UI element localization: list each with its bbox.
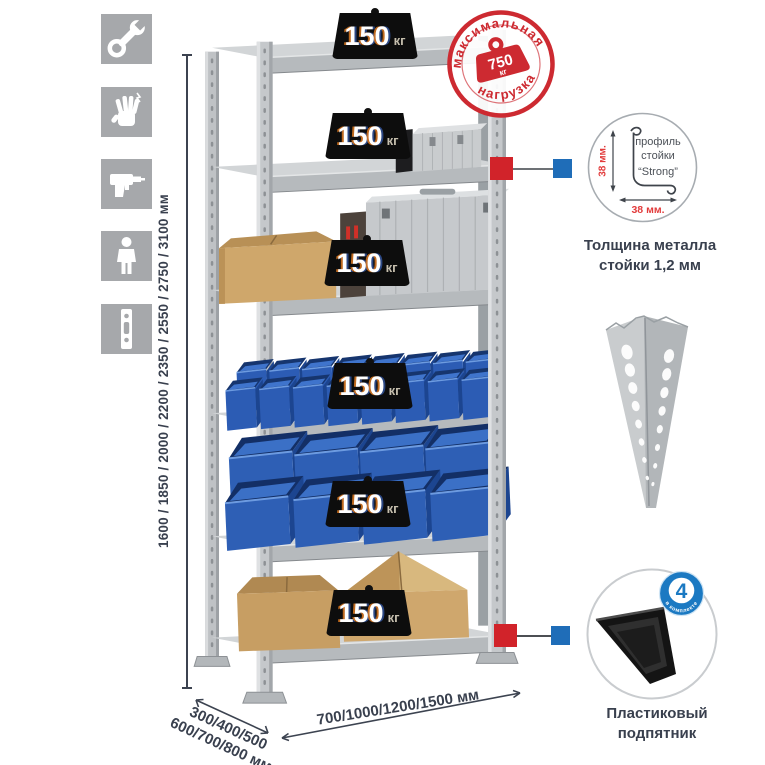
connector-blue-marker-top — [553, 159, 572, 178]
connector-red-marker-bottom — [494, 624, 517, 647]
profile-label: профиль стойки “Strong” — [635, 136, 681, 178]
width-dimension-label: 700/1000/1200/1500 мм — [316, 686, 481, 728]
weight-icon: 150кг — [325, 113, 411, 159]
load-badge: 150кг — [326, 585, 412, 636]
load-badge: 150кг — [325, 476, 411, 527]
weight-icon: 150кг — [326, 590, 412, 636]
height-dimension-line — [186, 55, 188, 688]
load-badge: 150кг — [327, 358, 413, 409]
included-count-badge: 4 в комплекте — [658, 570, 705, 617]
weight-icon: 150кг — [325, 481, 411, 527]
load-badge: 150кг — [324, 235, 410, 286]
load-badge: 150кг — [325, 108, 411, 159]
person-icon — [101, 231, 152, 281]
svg-text:стойки: стойки — [641, 150, 675, 162]
work-gloves-icon — [101, 87, 152, 137]
weight-icon: 150кг — [327, 363, 413, 409]
profile-dim-vertical: 38 мм. — [598, 145, 609, 177]
post-profile-detail: 38 мм. 38 мм. профиль стойки “Strong” — [584, 110, 701, 225]
rack-back-left-post — [205, 52, 219, 658]
height-dimension-label: 1600 / 1850 / 2000 / 2200 / 2350 / 2550 … — [156, 121, 174, 621]
wrench-icon — [101, 14, 152, 64]
connector-blue-marker-bottom — [551, 626, 570, 645]
cardboard-box — [219, 231, 336, 303]
foot-caption: Пластиковый подпятник — [565, 704, 749, 744]
svg-text:профиль: профиль — [635, 136, 681, 148]
floor-dimensions: 300/400/500 600/700/800 мм 700/1000/1200… — [150, 676, 550, 765]
drill-icon — [101, 159, 152, 209]
product-infographic: 1600 / 1850 / 2000 / 2200 / 2350 / 2550 … — [0, 0, 765, 765]
connector-red-marker-top — [490, 157, 513, 180]
profile-dim-horizontal: 38 мм. — [631, 204, 664, 216]
weight-icon: 150кг — [332, 13, 418, 59]
svg-text:“Strong”: “Strong” — [638, 166, 678, 178]
profile-caption: Толщина металла стойки 1,2 мм — [556, 236, 744, 276]
corner-post-image — [596, 306, 708, 518]
included-count-value: 4 — [676, 580, 688, 603]
rack-post-icon — [101, 304, 152, 354]
weight-icon: 150кг — [324, 240, 410, 286]
load-badge: 150кг — [332, 8, 418, 59]
